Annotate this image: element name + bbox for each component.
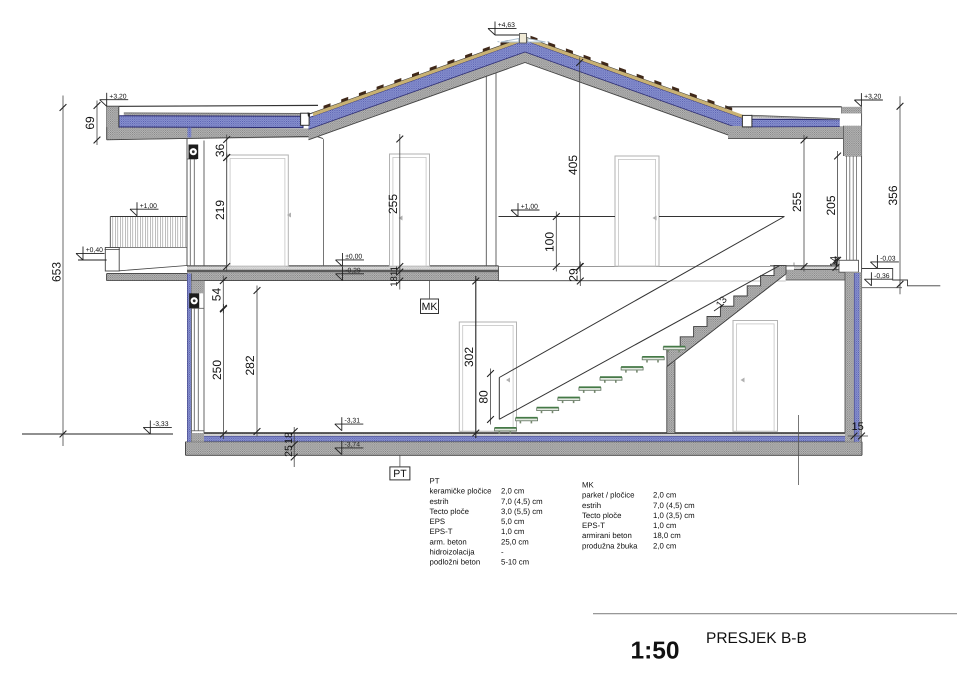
svg-text:25: 25 [283, 445, 295, 457]
svg-text:+0,40: +0,40 [86, 247, 103, 254]
svg-text:3,0 (5,5) cm: 3,0 (5,5) cm [501, 507, 543, 516]
svg-text:-0,36: -0,36 [874, 273, 890, 280]
svg-text:255: 255 [790, 192, 804, 212]
svg-text:18: 18 [389, 276, 400, 287]
svg-text:14: 14 [829, 256, 840, 268]
svg-text:+1,00: +1,00 [140, 203, 157, 210]
svg-text:-3,33: -3,33 [153, 421, 169, 428]
svg-text:69: 69 [83, 116, 97, 130]
svg-text:18: 18 [283, 432, 295, 444]
svg-text:1,0 cm: 1,0 cm [501, 527, 524, 536]
svg-text:80: 80 [477, 390, 491, 404]
svg-text:2,0 cm: 2,0 cm [653, 491, 676, 500]
svg-text:+1,00: +1,00 [521, 204, 538, 211]
svg-text:-3,31: -3,31 [345, 418, 361, 425]
svg-text:±0,00: ±0,00 [345, 254, 362, 261]
svg-text:produžna žbuka: produžna žbuka [582, 541, 638, 550]
svg-text:205: 205 [824, 195, 838, 215]
svg-text:podložni beton: podložni beton [430, 558, 481, 567]
svg-text:219: 219 [213, 200, 227, 220]
svg-text:302: 302 [462, 347, 476, 367]
svg-text:-0,29: -0,29 [345, 267, 361, 274]
svg-text:5-10 cm: 5-10 cm [501, 558, 529, 567]
svg-text:EPS: EPS [430, 517, 446, 526]
svg-text:5,0 cm: 5,0 cm [501, 517, 524, 526]
svg-text:+3,20: +3,20 [864, 94, 881, 101]
svg-text:54: 54 [210, 288, 224, 302]
svg-text:Tecto ploče: Tecto ploče [582, 511, 621, 520]
svg-text:arm. beton: arm. beton [430, 537, 467, 546]
svg-text:keramičke pločice: keramičke pločice [430, 487, 492, 496]
svg-text:7,0 (4,5) cm: 7,0 (4,5) cm [501, 497, 543, 506]
svg-text:1,0 (3,5) cm: 1,0 (3,5) cm [653, 511, 695, 520]
svg-text:25,0 cm: 25,0 cm [501, 537, 529, 546]
svg-text:estrih: estrih [430, 497, 449, 506]
svg-text:MK: MK [422, 301, 438, 313]
svg-text:-3,74: -3,74 [345, 442, 361, 449]
svg-text:armirani beton: armirani beton [582, 531, 632, 540]
svg-text:2,0 cm: 2,0 cm [653, 541, 676, 550]
svg-text:EPS-T: EPS-T [430, 527, 453, 536]
svg-text:11: 11 [389, 266, 400, 276]
svg-text:Tecto ploče: Tecto ploče [430, 507, 469, 516]
svg-text:405: 405 [566, 155, 580, 175]
svg-text:100: 100 [543, 232, 557, 252]
svg-text:29: 29 [567, 268, 581, 282]
svg-text:7,0 (4,5) cm: 7,0 (4,5) cm [653, 501, 695, 510]
svg-text:PT: PT [393, 468, 407, 480]
svg-text:653: 653 [49, 262, 63, 282]
svg-text:MK: MK [582, 481, 594, 490]
svg-text:1,0 cm: 1,0 cm [653, 521, 676, 530]
svg-text:15: 15 [852, 421, 864, 433]
svg-text:PT: PT [430, 477, 440, 486]
svg-text:356: 356 [886, 185, 900, 205]
svg-text:estrih: estrih [582, 501, 601, 510]
svg-text:36: 36 [213, 144, 227, 158]
svg-text:hidroizolacija: hidroizolacija [430, 548, 476, 557]
svg-text:PRESJEK B-B: PRESJEK B-B [706, 630, 807, 647]
svg-text:EPS-T: EPS-T [582, 521, 605, 530]
svg-text:250: 250 [210, 360, 224, 380]
svg-text:-0,03: -0,03 [880, 256, 896, 263]
svg-text:parket / pločice: parket / pločice [582, 491, 634, 500]
svg-text:18,0 cm: 18,0 cm [653, 531, 681, 540]
svg-text:255: 255 [386, 194, 400, 214]
svg-text:2,0 cm: 2,0 cm [501, 487, 524, 496]
svg-text:1:50: 1:50 [630, 638, 679, 665]
svg-text:282: 282 [243, 355, 257, 375]
svg-text:-: - [501, 548, 504, 557]
svg-text:+3,20: +3,20 [109, 93, 126, 100]
svg-text:+4,63: +4,63 [498, 22, 515, 29]
